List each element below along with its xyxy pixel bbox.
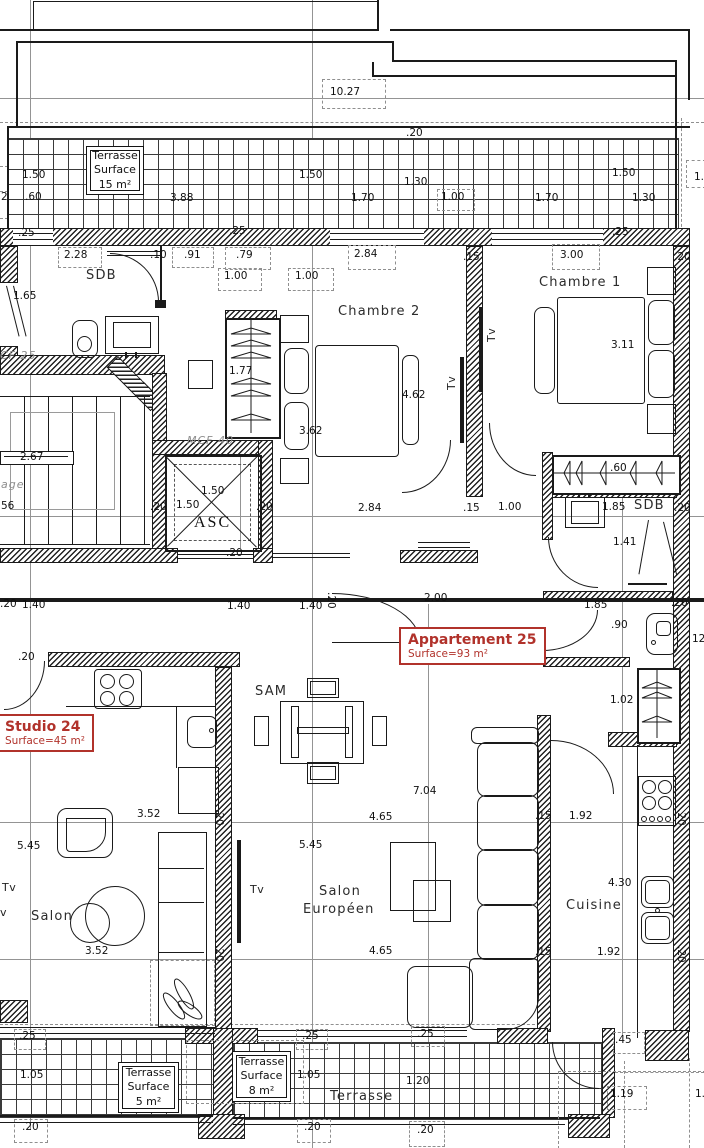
- plan-label: .20: [0, 599, 17, 611]
- plan-label: .20: [150, 502, 167, 514]
- labels-layer: 10.27.201.501.501.301.501.2.603.881.701.…: [0, 0, 704, 1148]
- plan-label: 1.50: [22, 170, 45, 182]
- apartment-surface: Surface=45 m²: [5, 735, 85, 747]
- plan-label: 4.65: [369, 812, 392, 824]
- plan-label: 3.52: [137, 809, 160, 821]
- floor-plan: Terrasse Surface 15 m² Terrasse Surface …: [0, 0, 704, 1148]
- plan-label: .79: [236, 250, 253, 262]
- plan-label: 1.40: [22, 600, 45, 612]
- plan-label: Salon: [319, 885, 361, 899]
- plan-label: 3.62: [299, 426, 322, 438]
- plan-label: .20: [671, 598, 688, 610]
- plan-label: .15: [535, 947, 552, 959]
- plan-label: 1.65: [13, 291, 36, 303]
- plan-label: .20: [304, 1122, 321, 1134]
- plan-label: 1.30: [404, 177, 427, 189]
- plan-label: .90: [611, 620, 628, 632]
- plan-label: MCF 40: [187, 435, 234, 447]
- plan-label: 1.00: [224, 271, 247, 283]
- plan-label: 2.84: [358, 503, 381, 515]
- plan-label: Chambre 2: [338, 305, 420, 319]
- plan-label: CF 25: [0, 350, 37, 362]
- plan-label: .25: [18, 228, 35, 240]
- plan-label: 1.02: [610, 695, 633, 707]
- plan-label: .20: [674, 809, 686, 826]
- apartment-surface: Surface=93 m²: [408, 648, 537, 660]
- plan-label: .25: [19, 1031, 36, 1043]
- plan-label: 3.52: [85, 946, 108, 958]
- plan-label: 1.05: [297, 1070, 320, 1082]
- plan-label: 5.45: [17, 841, 40, 853]
- plan-label: 1.40: [227, 601, 250, 613]
- plan-label: .20: [256, 502, 273, 514]
- plan-label: .20: [324, 592, 336, 609]
- apartment-name: Studio 24: [5, 719, 85, 735]
- plan-label: ASC: [194, 514, 231, 532]
- plan-label: 1.00: [498, 502, 521, 514]
- plan-label: 1.70: [535, 193, 558, 205]
- plan-label: .20: [674, 946, 686, 963]
- plan-label: .10: [150, 250, 167, 262]
- plan-label: .20: [226, 548, 243, 560]
- plan-label: 1.50: [176, 500, 199, 512]
- plan-label: .15: [463, 503, 480, 515]
- plan-label: 1.05: [20, 1070, 43, 1082]
- plan-label: .25: [229, 226, 246, 238]
- plan-label: .60: [25, 192, 42, 204]
- plan-label: 2: [1, 192, 8, 204]
- plan-label: 10.27: [330, 87, 360, 99]
- plan-label: 3.11: [611, 340, 634, 352]
- plan-label: .20: [674, 252, 691, 264]
- plan-label: 12: [692, 634, 704, 646]
- plan-label: 1.77: [229, 366, 252, 378]
- plan-label: 7.04: [413, 786, 436, 798]
- plan-label: .15: [463, 252, 480, 264]
- plan-label: .20: [212, 809, 224, 826]
- plan-label: 1.92: [569, 811, 592, 823]
- plan-label: .91: [184, 250, 201, 262]
- plan-label: 1.50: [299, 170, 322, 182]
- plan-label: .20: [212, 945, 224, 962]
- plan-label: 1.50: [201, 486, 224, 498]
- apartment-label-appartement-25: Appartement 25 Surface=93 m²: [399, 627, 546, 665]
- plan-label: Tv: [446, 376, 458, 390]
- plan-label: 1.20: [406, 1076, 429, 1088]
- plan-label: Tv: [250, 884, 264, 896]
- plan-label: .20: [22, 1122, 39, 1134]
- plan-label: .45: [615, 1035, 632, 1047]
- plan-label: 5.45: [299, 840, 322, 852]
- plan-label: 2.28: [64, 250, 87, 262]
- plan-label: SAM: [255, 685, 287, 699]
- plan-label: .60: [610, 463, 627, 475]
- plan-label: .20: [674, 503, 691, 515]
- plan-label: 1.40: [299, 601, 322, 613]
- plan-label: Terrasse: [330, 1090, 393, 1104]
- plan-label: 4.62: [402, 390, 425, 402]
- plan-label: 1.: [695, 1089, 704, 1101]
- plan-label: 56: [1, 501, 14, 513]
- plan-label: 1.: [694, 172, 704, 184]
- plan-label: 2.00: [424, 593, 447, 605]
- plan-label: 1.70: [351, 193, 374, 205]
- plan-label: 1.50: [612, 168, 635, 180]
- plan-label: 1.30: [632, 193, 655, 205]
- plan-label: .20: [406, 128, 423, 140]
- plan-label: 1.41: [613, 537, 636, 549]
- plan-label: 1.00: [295, 271, 318, 283]
- plan-label: 1.19: [610, 1089, 633, 1101]
- plan-label: Tv: [2, 882, 16, 894]
- plan-label: 3.00: [560, 250, 583, 262]
- plan-label: 4.30: [608, 878, 631, 890]
- plan-label: 4.65: [369, 946, 392, 958]
- plan-label: 1.85: [602, 502, 625, 514]
- apartment-name: Appartement 25: [408, 632, 537, 648]
- plan-label: Chambre 1: [539, 276, 621, 290]
- plan-label: Salon: [31, 910, 73, 924]
- apartment-label-studio-24: Studio 24 Surface=45 m²: [0, 714, 94, 752]
- plan-label: Tv: [486, 328, 498, 342]
- plan-label: .15: [535, 811, 552, 823]
- plan-label: .25: [612, 227, 629, 239]
- plan-label: age: [1, 479, 25, 491]
- plan-label: .25: [417, 1029, 434, 1041]
- plan-label: 1.92: [597, 947, 620, 959]
- plan-label: 2.84: [354, 249, 377, 261]
- plan-label: .25: [302, 1031, 319, 1043]
- plan-label: SDB: [86, 269, 117, 283]
- plan-label: SDB: [634, 499, 665, 513]
- plan-label: .20: [18, 652, 35, 664]
- plan-label: 1.85: [584, 600, 607, 612]
- plan-label: 1.00: [441, 192, 464, 204]
- plan-label: v: [0, 907, 7, 919]
- plan-label: Cuisine: [566, 899, 622, 913]
- plan-label: Européen: [303, 903, 375, 917]
- plan-label: 2.67: [20, 452, 43, 464]
- plan-label: 3.88: [170, 193, 193, 205]
- plan-label: .20: [417, 1125, 434, 1137]
